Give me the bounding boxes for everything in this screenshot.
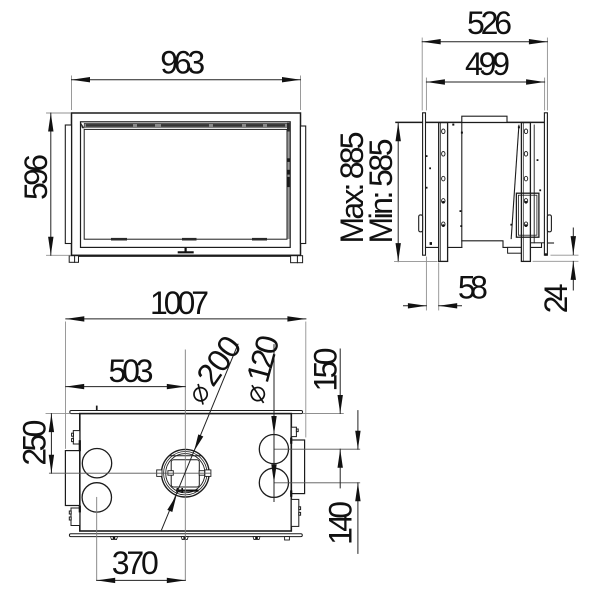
svg-text:526: 526 (467, 5, 512, 41)
svg-text:150: 150 (307, 348, 343, 392)
svg-text:963: 963 (160, 45, 205, 81)
svg-text:503: 503 (109, 353, 154, 389)
svg-text:24: 24 (538, 283, 574, 313)
svg-text:58: 58 (458, 270, 488, 306)
svg-text:499: 499 (465, 46, 510, 82)
svg-text:250: 250 (17, 420, 53, 466)
svg-text:596: 596 (18, 154, 54, 200)
svg-text:Min: 585: Min: 585 (363, 139, 399, 244)
svg-text:140: 140 (323, 501, 359, 545)
svg-text:1007: 1007 (150, 285, 209, 321)
svg-text:370: 370 (112, 545, 159, 581)
